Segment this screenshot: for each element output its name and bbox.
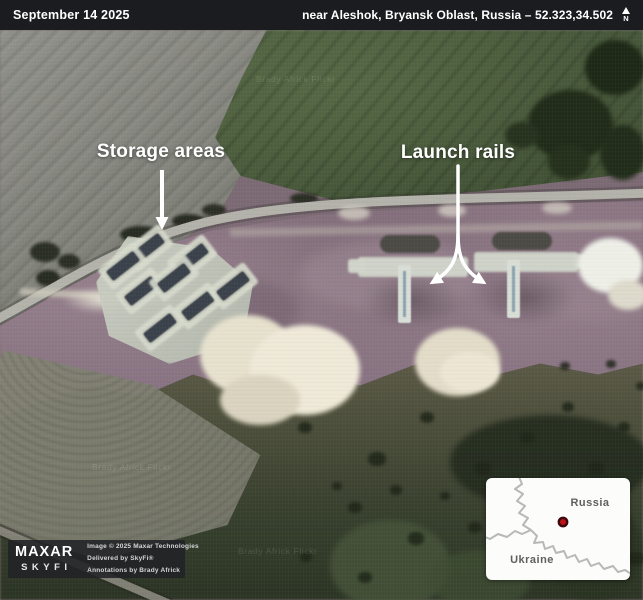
- locator-inset-map: Russia Ukraine: [486, 478, 630, 580]
- annotated-satellite-image: September 14 2025 near Aleshok, Bryansk …: [0, 0, 643, 600]
- launch-arrow-right: [458, 235, 483, 282]
- top-info-bar: September 14 2025 near Aleshok, Bryansk …: [0, 0, 643, 30]
- site-location-marker: [559, 518, 567, 526]
- russia-label: Russia: [570, 497, 609, 509]
- maxar-wordmark: MAXAR: [15, 545, 73, 560]
- credit-line-2: Delivered by SkyFi®: [87, 553, 199, 565]
- north-arrow-triangle: [622, 7, 630, 14]
- skyfi-wordmark: SKYFI: [21, 563, 71, 573]
- ukraine-label: Ukraine: [510, 554, 554, 566]
- location-coordinates: near Aleshok, Bryansk Oblast, Russia – 5…: [302, 8, 613, 22]
- russia-ukraine-border: [486, 478, 630, 574]
- launch-arrow-left: [433, 166, 458, 282]
- credit-lines: Image © 2025 Maxar Technologies Delivere…: [87, 541, 199, 576]
- satellite-imagery: Brady Africk Flickr Brady Africk Flickr …: [0, 30, 643, 600]
- maxar-skyfi-logo: MAXAR SKYFI: [15, 545, 73, 572]
- credit-line-1: Image © 2025 Maxar Technologies: [87, 541, 199, 553]
- inset-map-canvas: Russia Ukraine: [486, 478, 630, 580]
- storage-areas-label: Storage areas: [97, 141, 225, 163]
- north-label: N: [623, 15, 628, 23]
- launch-rails-label: Launch rails: [401, 142, 515, 164]
- capture-date: September 14 2025: [13, 8, 130, 22]
- north-arrow-icon: N: [622, 7, 630, 23]
- image-credit-box: MAXAR SKYFI Image © 2025 Maxar Technolog…: [8, 540, 185, 578]
- credit-line-3: Annotations by Brady Africk: [87, 565, 199, 577]
- location-group: near Aleshok, Bryansk Oblast, Russia – 5…: [302, 7, 630, 23]
